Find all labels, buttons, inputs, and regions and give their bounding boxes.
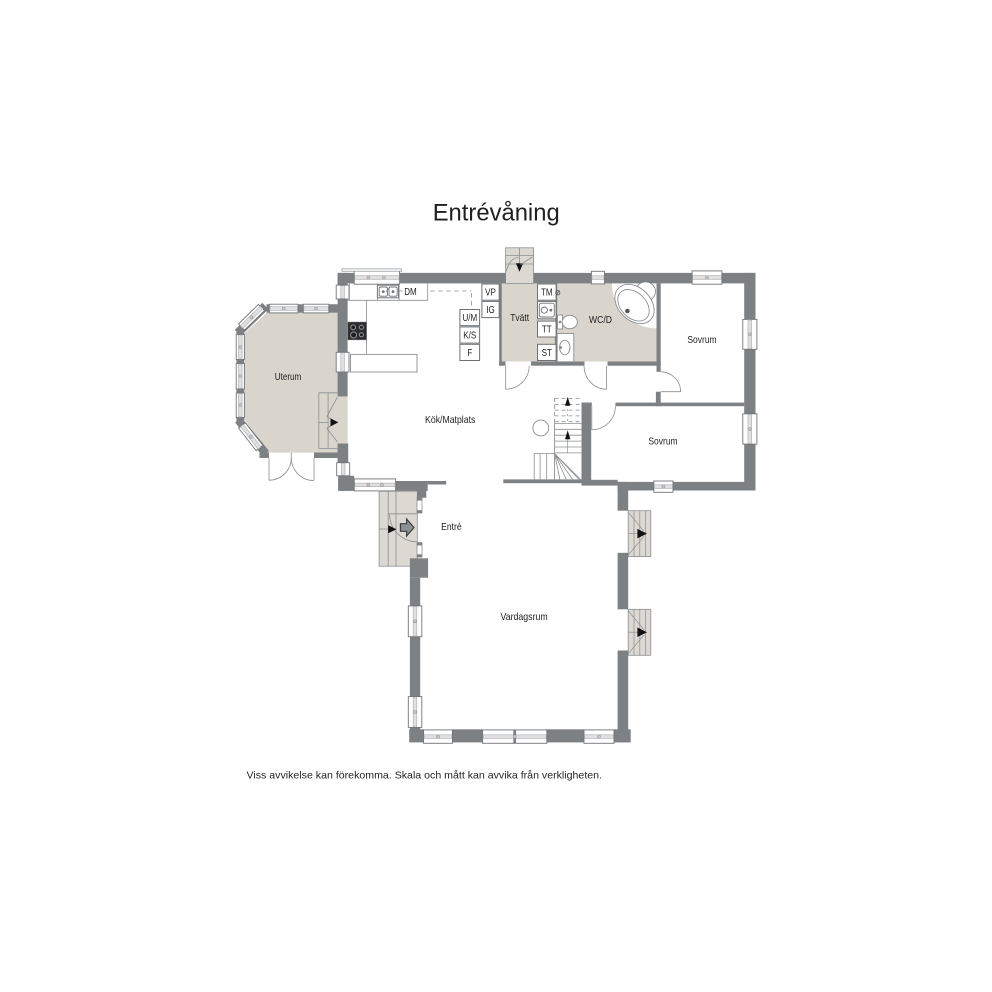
svg-text:K/S: K/S bbox=[463, 330, 476, 341]
svg-text:ST: ST bbox=[542, 348, 552, 359]
svg-text:WC/D: WC/D bbox=[589, 314, 612, 326]
svg-text:DM: DM bbox=[404, 287, 417, 298]
svg-text:Uterum: Uterum bbox=[275, 371, 302, 383]
svg-text:VP: VP bbox=[485, 288, 496, 299]
svg-text:U/M: U/M bbox=[462, 313, 477, 324]
svg-text:Sovrum: Sovrum bbox=[648, 435, 677, 447]
svg-text:Entrévåning: Entrévåning bbox=[433, 200, 560, 227]
svg-text:F: F bbox=[467, 348, 472, 359]
svg-text:Kök/Matplats: Kök/Matplats bbox=[425, 414, 475, 426]
svg-text:TT: TT bbox=[542, 324, 552, 335]
svg-text:TM: TM bbox=[541, 288, 553, 299]
svg-text:Sovrum: Sovrum bbox=[687, 334, 716, 346]
svg-text:Vardagsrum: Vardagsrum bbox=[501, 611, 548, 623]
svg-text:Entré: Entré bbox=[441, 521, 462, 533]
svg-text:IG: IG bbox=[486, 305, 495, 316]
svg-text:Viss avvikelse kan förekomma.: Viss avvikelse kan förekomma. Skala och … bbox=[247, 770, 603, 782]
svg-text:Tvätt: Tvätt bbox=[510, 312, 529, 324]
